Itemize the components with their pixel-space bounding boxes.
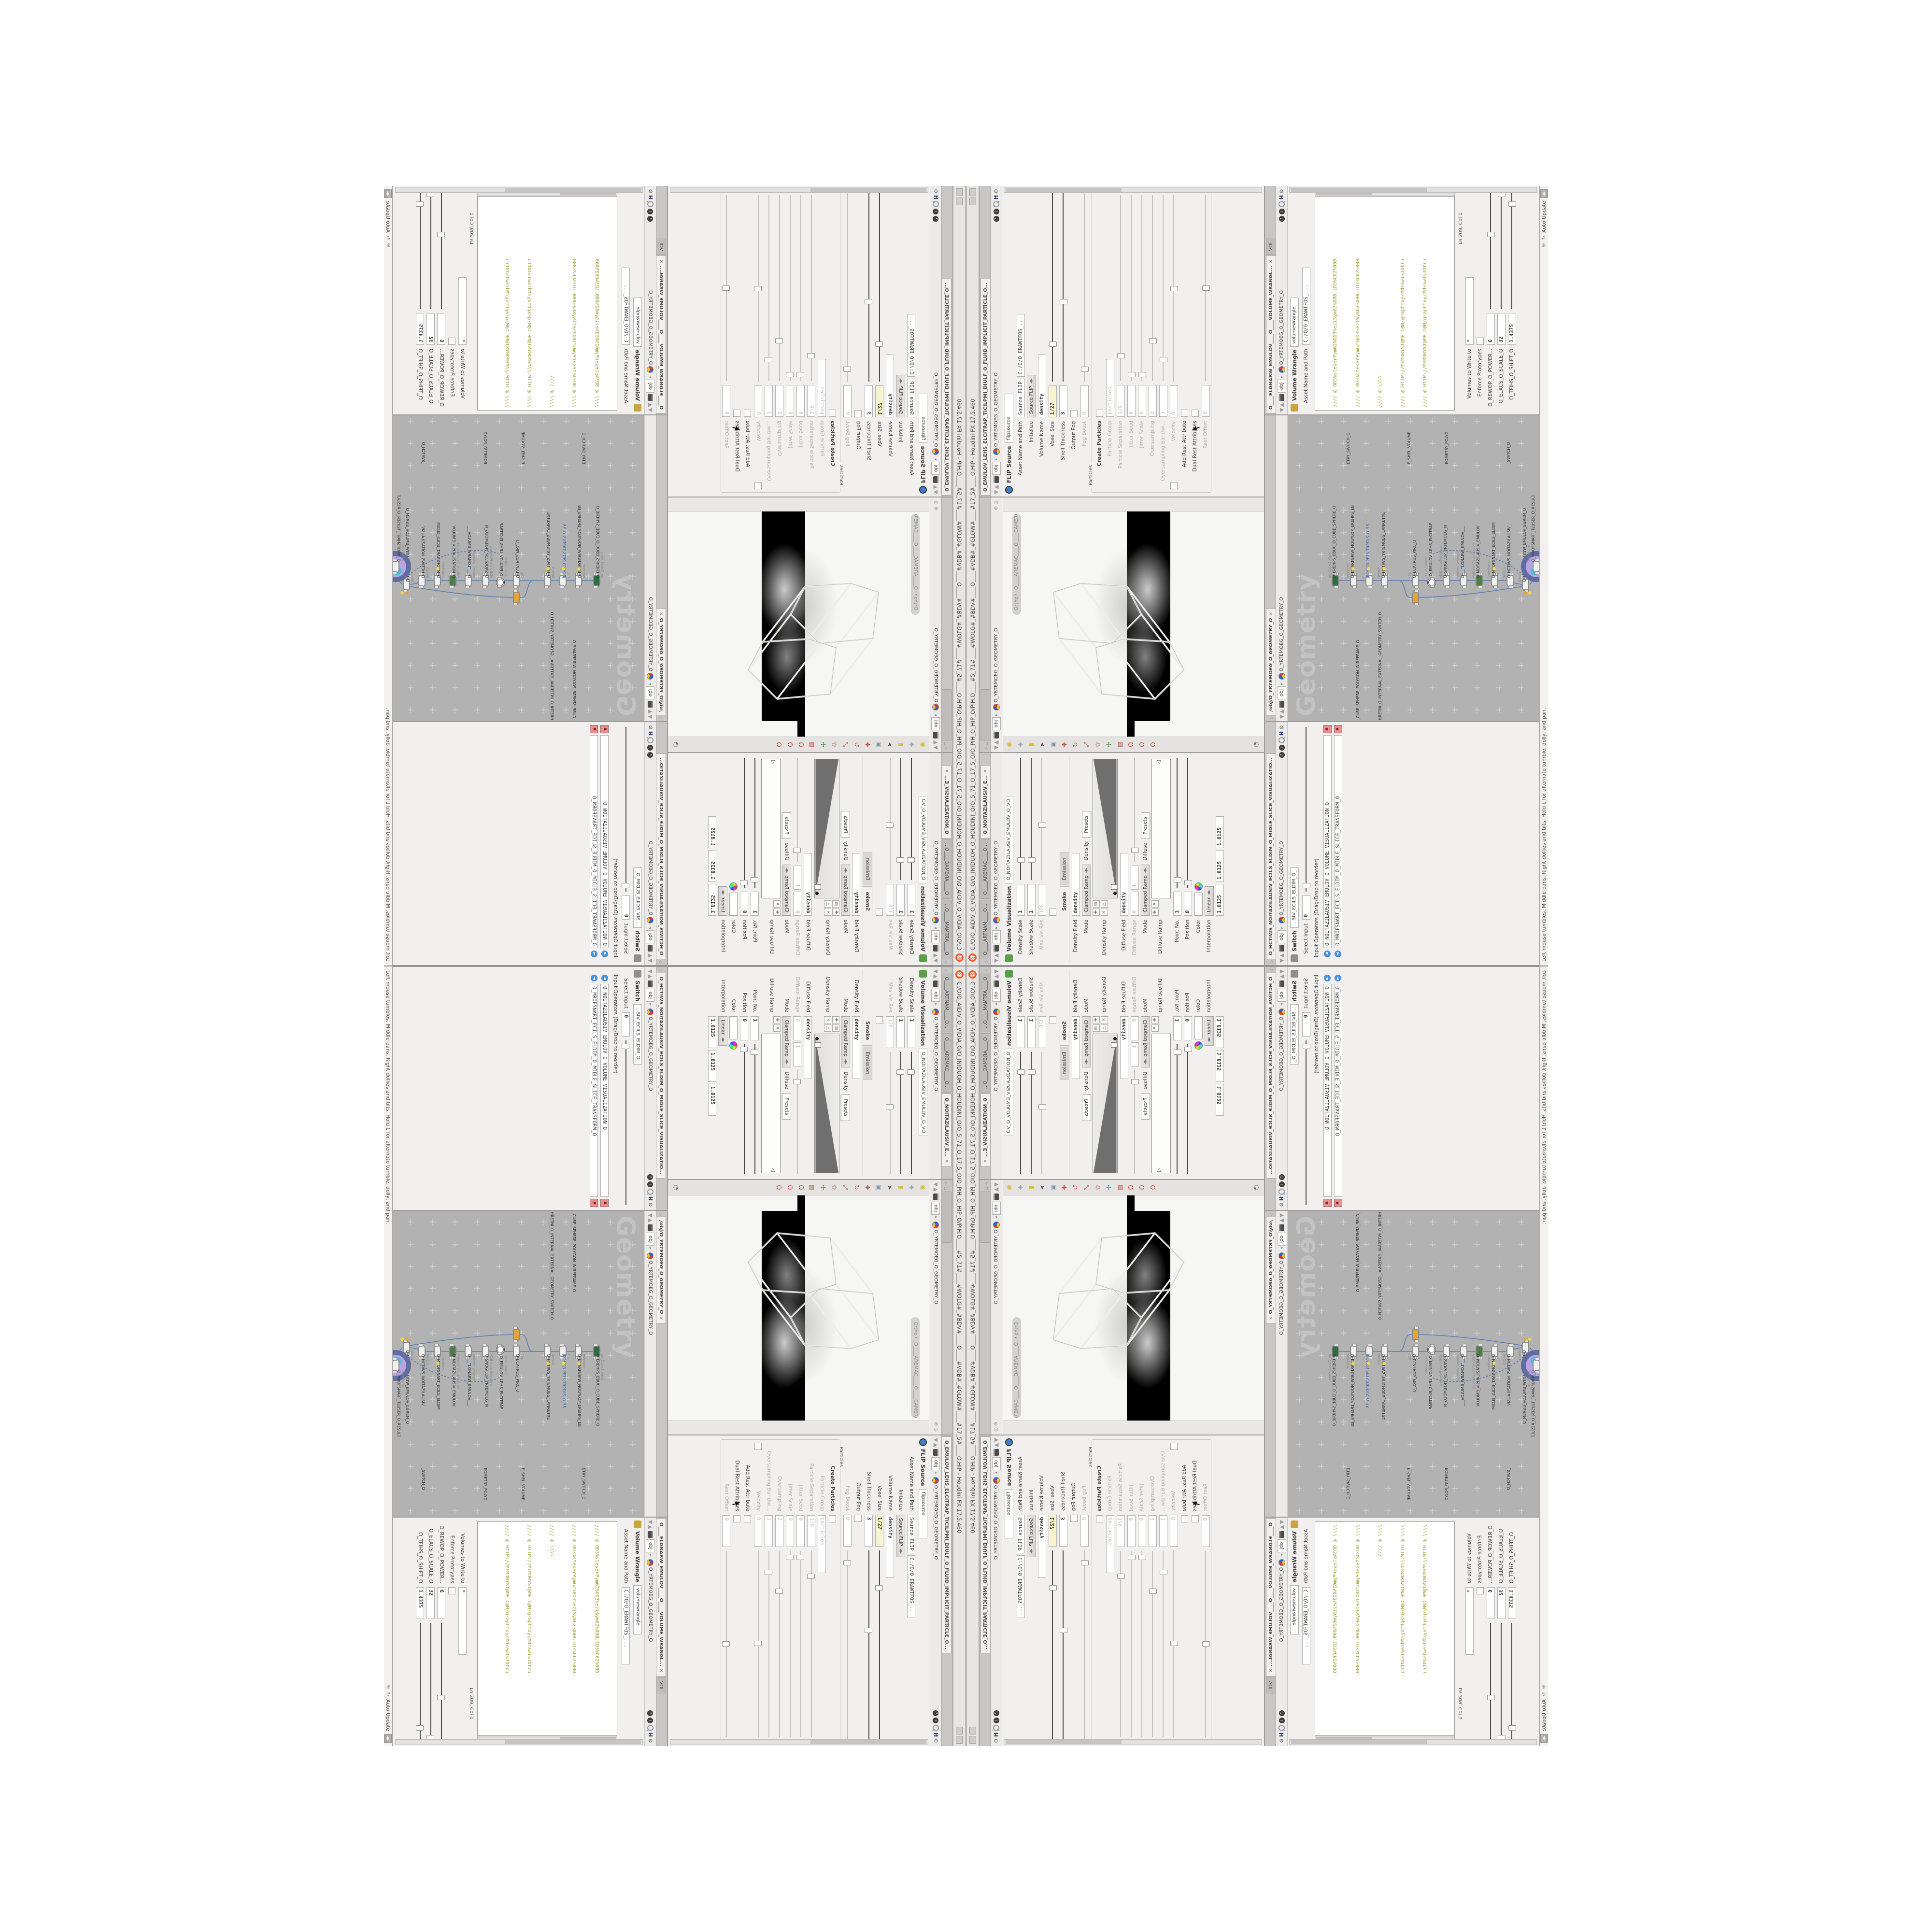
oversampling-slider[interactable]	[776, 193, 783, 381]
dual-rest-checkbox[interactable]	[734, 1515, 741, 1522]
viewport-canvas[interactable]: Ortho ▾ O____AREMAC____O____CAMERA_	[668, 511, 929, 737]
jitter-seed-slider[interactable]	[797, 1551, 805, 1739]
shadow-scale-slider[interactable]	[897, 1052, 905, 1176]
pane-split-icon[interactable]: ▷	[944, 960, 948, 963]
breadcrumb-path[interactable]: O_YRTEMOEG_O_GEOMETRY_O	[994, 1230, 999, 1304]
select-arrow-icon[interactable]: ➤	[884, 1183, 894, 1193]
marker-icon[interactable]: △	[824, 1024, 831, 1032]
ramp-buttons[interactable]: ✚✕	[1151, 1016, 1159, 1032]
pin-icon[interactable]: ⊕	[933, 1422, 938, 1426]
nav-down-icon[interactable]: ▼	[647, 959, 653, 963]
volume-name-field[interactable]: density	[1038, 355, 1046, 417]
remove-item-icon[interactable]: ✖	[590, 725, 598, 733]
pane-split-icon[interactable]: ▷	[944, 747, 948, 750]
close-button[interactable]	[969, 1736, 976, 1744]
operator-item[interactable]: O_MROFSNART_ECILS_ELDIM_O_MIDLE_SLICE_TR…	[1334, 984, 1342, 1197]
close-tab-icon[interactable]: ✕	[1269, 1669, 1274, 1673]
bypass-flag-icon[interactable]	[467, 1362, 470, 1365]
power-field[interactable]: 6	[1487, 1587, 1495, 1619]
viewport-canvas[interactable]: Ortho ▾ O____AREMAC____O____CAMERA_	[1003, 1195, 1264, 1421]
shade-diamond-icon[interactable]: ◈	[1016, 1183, 1025, 1193]
density-scale-field[interactable]: 1	[908, 884, 916, 916]
shell-thickness-slider[interactable]	[865, 1550, 873, 1743]
output-fog-checkbox[interactable]	[855, 410, 862, 417]
create-particles-checkbox[interactable]	[829, 410, 837, 417]
viewport-tab[interactable]	[980, 1192, 990, 1243]
enforce-prototypes-checkbox[interactable]	[1477, 1587, 1484, 1594]
template-flag-icon[interactable]	[1523, 591, 1527, 595]
nav-down-icon[interactable]: ▼	[1279, 408, 1285, 412]
operator-item[interactable]: O_MROFSNART_ECILS_ELDIM_O_MIDLE_SLICE_TR…	[590, 984, 598, 1197]
display-flag-icon[interactable]	[1528, 1337, 1532, 1341]
output-fog-checkbox[interactable]	[1070, 1515, 1078, 1522]
scale-slider[interactable]	[427, 1623, 435, 1743]
pane-split-icon[interactable]: ▷	[1269, 1213, 1274, 1216]
asset-name-field[interactable]: Source FLIP	[908, 1515, 916, 1553]
shift-slider[interactable]	[1508, 189, 1516, 309]
breadcrumb-path[interactable]: O_YRTEMOEG_O_GEOMETRY_O	[1279, 290, 1284, 365]
pane-split-icon[interactable]: ▷	[984, 969, 988, 972]
snap-point-icon[interactable]: Ω	[796, 740, 805, 750]
move-icon[interactable]: ✥	[1060, 740, 1070, 750]
nav-down-icon[interactable]: ▼	[647, 1520, 653, 1524]
obj-context[interactable]: obj	[992, 1457, 1001, 1470]
jitter-scale-slider[interactable]	[786, 193, 794, 381]
cook-icon[interactable]: ❋	[1541, 243, 1547, 247]
network-node-selected[interactable]	[1533, 560, 1539, 573]
color-swatch[interactable]	[1194, 1016, 1203, 1039]
dual-rest-checkbox[interactable]	[1192, 1515, 1199, 1522]
nav-down-icon[interactable]: ▼	[1279, 715, 1285, 719]
velocity-checkbox[interactable]	[1170, 1443, 1178, 1450]
breadcrumb-path[interactable]: O_YRTEMOEG_O_GEOMETRY_O	[1279, 597, 1284, 671]
breadcrumb-path[interactable]: O_YRTEMOEG_O_GEOMETRY_O	[1279, 841, 1284, 915]
breadcrumb-path[interactable]: O_YRTEMOEG_O_GEOMETRY_O	[994, 1485, 999, 1560]
diffuse-mode-dropdown[interactable]: Clamped Ramp◀▶	[1141, 865, 1150, 916]
diffuse-field-field[interactable]: density	[804, 853, 812, 916]
tab-camera[interactable]: O____AREMAC____O...	[980, 839, 990, 899]
rest-offset-slider[interactable]	[723, 1551, 730, 1739]
diffuse-range-max-field[interactable]: 1	[1131, 1042, 1139, 1066]
pin-icon[interactable]: ⊕	[994, 1422, 999, 1426]
operator-item[interactable]: O_NOITAZILAUSIV_EMULOV_O_VOLUME_VISUALIZ…	[1323, 984, 1332, 1197]
switch-tab[interactable]: O_HCTIWS_NOITAZILAUSIV_ECILS_ELDIM_O_MID…	[656, 753, 666, 959]
display-flag-icon[interactable]	[546, 1362, 550, 1365]
template-flag-icon[interactable]	[1523, 1337, 1527, 1341]
gear-icon[interactable]: ⚙	[647, 189, 653, 194]
density-scale-slider[interactable]	[908, 756, 915, 880]
asset-name-field[interactable]: Source FLIP	[1017, 1515, 1025, 1553]
info-icon[interactable]: i	[648, 745, 653, 751]
flipbook-icon[interactable]: ◔	[671, 740, 681, 750]
search-icon[interactable]	[1279, 1725, 1285, 1731]
wrangle-scrollbar[interactable]	[1289, 1739, 1537, 1745]
select-input-slider[interactable]	[1302, 725, 1310, 892]
velocity-checkbox[interactable]	[1170, 482, 1178, 489]
diffuse-range-slider[interactable]	[1131, 1070, 1138, 1176]
fog-boost-slider[interactable]	[844, 1550, 852, 1743]
close-tab-icon[interactable]: ✕	[658, 260, 663, 264]
value-z-field[interactable]: 1.8125	[1216, 1084, 1224, 1116]
shade-diamond-icon[interactable]: ◈	[907, 740, 916, 750]
close-tab-icon[interactable]: ✕	[1269, 1316, 1274, 1320]
folder-tab-smoke[interactable]: Smoke	[863, 1016, 872, 1046]
nav-up-icon[interactable]: ▲	[1279, 403, 1285, 407]
rest-offset-slider[interactable]	[1202, 1551, 1209, 1739]
network-tab[interactable]: /obj/O_YRTEMOEG_O_GEOMETRY_O✕	[656, 1217, 666, 1324]
scale-field[interactable]: 32	[1497, 313, 1506, 345]
shadow-scale-field[interactable]: 1	[897, 884, 905, 916]
close-tab-icon[interactable]: ✕	[944, 1159, 949, 1163]
network-node[interactable]	[496, 1345, 505, 1354]
network-node-branch[interactable]	[513, 1328, 520, 1341]
diffuse-range-min-field[interactable]: 0	[794, 1016, 802, 1040]
nav-up-icon[interactable]: ▲	[933, 1187, 939, 1191]
breadcrumb-path[interactable]: O_YRTEMOEG_O_GEOMETRY_O	[648, 597, 653, 671]
shell-thickness-field[interactable]: 3	[865, 1515, 873, 1547]
breadcrumb-path[interactable]: O_YRTEMOEG_O_GEOMETRY_O	[648, 1261, 653, 1335]
scale-field[interactable]: 32	[427, 1587, 435, 1619]
tab-visualization[interactable]: O_NOITAZILAUSIV_E...✕	[942, 1094, 952, 1166]
expand-icon[interactable]: ⊞	[1093, 1024, 1100, 1032]
voxel-size-slider[interactable]	[1049, 189, 1056, 382]
search-icon[interactable]	[933, 1725, 939, 1731]
point-no-slider[interactable]	[1173, 756, 1181, 888]
viewport-canvas[interactable]: Ortho ▾ O____AREMAC____O____CAMERA_	[1003, 511, 1264, 737]
nav-down-icon[interactable]: ▼	[647, 715, 653, 719]
value-y-field[interactable]: 1.8125	[709, 1050, 717, 1082]
search-icon[interactable]	[647, 1189, 653, 1195]
marker-icon[interactable]: △	[1101, 900, 1108, 908]
unlabeled-checkbox[interactable]	[1049, 909, 1056, 916]
nav-up-icon[interactable]: ▲	[1279, 1525, 1285, 1529]
interpolation-dropdown[interactable]: Linear◀▶	[719, 886, 728, 916]
diffuse-range-slider[interactable]	[1131, 756, 1138, 862]
value-x-field[interactable]: 1.8125	[1216, 1016, 1224, 1048]
particle-group-field[interactable]: particles	[818, 1515, 826, 1573]
create-particles-checkbox[interactable]	[1096, 410, 1103, 417]
oversampling-field[interactable]: 2	[1149, 385, 1157, 417]
tab-mantra[interactable]: O____ARTNAM____O...	[942, 900, 952, 959]
refresh-icon[interactable]: ↻	[1541, 1692, 1547, 1696]
power-field[interactable]: 6	[438, 1587, 446, 1619]
obj-context[interactable]: obj	[646, 989, 655, 1002]
shade-diamond-icon[interactable]: ◈	[907, 1183, 916, 1193]
hscript-icon[interactable]: H	[1279, 195, 1285, 199]
wrangle-tab[interactable]: O____ELGNARW_EMULOV____O____VOLUME_WRANG…	[656, 256, 666, 414]
nav-down-icon[interactable]: ▼	[933, 1182, 939, 1186]
obj-context[interactable]: obj	[932, 989, 940, 1002]
nav-down-icon[interactable]: ▼	[1279, 1213, 1285, 1217]
breadcrumb-path[interactable]: O_YRTEMOEG_O_GEOMETRY_O	[933, 1017, 938, 1091]
fog-boost-field[interactable]: 0	[844, 1515, 852, 1547]
viewport-right-strip[interactable]	[1003, 1421, 1264, 1435]
switch-node-name-field[interactable]: ...SIV_ECILS_ELDIM_O_	[1290, 867, 1299, 928]
density-presets-button[interactable]: Presets	[841, 811, 851, 837]
interpolation-dropdown[interactable]: Linear◀▶	[719, 1016, 728, 1046]
color-wheel-icon[interactable]	[1194, 882, 1203, 891]
select-input-slider[interactable]	[1302, 1040, 1310, 1207]
wrangle-tab-overflow[interactable]: VOl	[1266, 1677, 1276, 1693]
close-tab-icon[interactable]: ✕	[658, 1669, 663, 1673]
point-no-slider[interactable]	[751, 756, 759, 888]
snap-grid-icon[interactable]: ▦	[1116, 740, 1125, 750]
info-icon[interactable]: i	[648, 1718, 653, 1723]
fog-boost-field[interactable]: 0	[1080, 1515, 1089, 1547]
position-slider[interactable]	[1184, 756, 1192, 888]
velocity-field[interactable]: 0	[1170, 1515, 1178, 1547]
particle-separation-field[interactable]: 1/9	[1117, 1515, 1125, 1547]
search-icon[interactable]	[933, 201, 939, 207]
value-z-field[interactable]: 1.8125	[709, 816, 717, 848]
obj-context[interactable]: obj	[1278, 686, 1286, 699]
nav-down-icon[interactable]: ▼	[993, 1182, 999, 1186]
particle-group-field[interactable]: particles	[1106, 359, 1114, 417]
move-icon[interactable]: ✥	[862, 740, 872, 750]
shadow-scale-field[interactable]: 1	[1027, 1016, 1036, 1048]
breadcrumb-path[interactable]: O_YRTEMOEG_O_GEOMETRY_O	[1279, 1261, 1284, 1335]
network-node[interactable]	[1427, 1345, 1436, 1354]
density-ramp-widget[interactable]	[814, 1034, 839, 1173]
oversampling-bw-slider[interactable]	[765, 193, 773, 381]
jitter-seed-slider[interactable]	[1127, 193, 1135, 381]
obj-context[interactable]: obj	[932, 462, 940, 475]
obj-context[interactable]: obj	[932, 1202, 940, 1215]
vex-snippet-editor[interactable]: //// @ 0D3%steserPym62%0D3%eziSym62%000.…	[1315, 196, 1455, 411]
wrangle-node-name-field[interactable]: volumewrangle	[634, 298, 642, 347]
nav-down-icon[interactable]: ▼	[993, 1438, 999, 1442]
pin-icon[interactable]: ⊕	[933, 506, 938, 510]
wrangle-tab-overflow[interactable]: VOl	[656, 239, 666, 255]
info-icon[interactable]: i	[648, 1181, 653, 1187]
remove-item-icon[interactable]: ✖	[1323, 1199, 1332, 1207]
nav-up-icon[interactable]: ▲	[1279, 953, 1285, 957]
pane-split-icon[interactable]: ▷	[944, 969, 948, 972]
position-field[interactable]: 0	[740, 892, 749, 916]
marker-icon[interactable]: △	[824, 900, 831, 908]
gear-icon[interactable]: ⚙	[993, 1738, 999, 1743]
nav-down-icon[interactable]: ▼	[933, 959, 939, 963]
cook-icon[interactable]: ❋	[385, 1685, 391, 1689]
nav-down-icon[interactable]: ▼	[993, 490, 999, 494]
viewport-tab[interactable]	[942, 689, 952, 740]
add-point-icon[interactable]: ✚	[773, 1016, 781, 1023]
jitter-seed-field[interactable]: 0	[797, 1515, 805, 1547]
flipbook-icon[interactable]: ◔	[671, 1183, 681, 1193]
flip-node-name-field[interactable]: flipsource	[919, 394, 928, 443]
gear-icon[interactable]: ⚙	[1279, 725, 1285, 730]
window-buttons[interactable]	[956, 1727, 963, 1744]
display-flag-icon[interactable]	[1492, 1362, 1496, 1365]
wrangle-tab-overflow[interactable]: VOl	[1266, 239, 1276, 255]
display-flag-icon[interactable]	[562, 567, 565, 570]
shift-slider[interactable]	[416, 189, 424, 309]
wrangle-tab[interactable]: O____ELGNARW_EMULOV____O____VOLUME_WRANG…	[1266, 1519, 1276, 1676]
color-wheel-icon[interactable]	[730, 1041, 738, 1050]
add-rest-checkbox[interactable]	[1181, 410, 1188, 417]
obj-context[interactable]: obj	[992, 462, 1001, 475]
update-mode-dropdown-icon[interactable]: ◀▶	[384, 1734, 392, 1743]
point-no-slider[interactable]	[751, 1044, 759, 1176]
point-no-field[interactable]: 1	[1173, 892, 1181, 916]
breadcrumb-path[interactable]: O_YRTEMOEG_O_GEOMETRY_O	[994, 628, 999, 702]
display-flag-icon[interactable]	[546, 567, 550, 570]
ramp-buttons[interactable]: ✚⊞✕△	[1093, 1016, 1108, 1032]
help-icon[interactable]: ?	[648, 216, 653, 222]
display-flag-icon[interactable]	[1351, 1362, 1355, 1365]
voxel-size-slider[interactable]	[1049, 1550, 1056, 1743]
display-flag-icon[interactable]	[577, 1362, 581, 1365]
asset-path-field[interactable]: C:/O/O_ERAWTFOS_...	[1017, 1555, 1025, 1618]
breadcrumb-path[interactable]: O_YRTEMOEG_O_GEOMETRY_O	[933, 1485, 938, 1560]
diffuse-presets-button[interactable]: Presets	[1141, 1093, 1150, 1119]
vv-node-name-field[interactable]: O_NOITAZILAUSIV_EMULOV_O_VO	[1005, 796, 1013, 883]
info-icon[interactable]: i	[933, 209, 939, 214]
tab-visualization[interactable]: O_NOITAZILAUSIV_E...✕	[980, 765, 990, 838]
input-link-icon[interactable]: ◄	[591, 951, 597, 957]
network-node-selected[interactable]	[393, 560, 399, 573]
obj-context[interactable]: obj	[646, 686, 655, 699]
volume-name-field[interactable]: density	[886, 355, 895, 417]
network-tab[interactable]: /obj/O_YRTEMOEG_O_GEOMETRY_O✕	[656, 608, 666, 715]
add-rest-checkbox[interactable]	[1181, 1515, 1188, 1522]
power-slider[interactable]	[438, 189, 445, 309]
obj-context[interactable]: obj	[1278, 380, 1286, 393]
gear-icon[interactable]: ⚙	[1279, 1202, 1285, 1207]
delete-point-icon[interactable]: ✕	[773, 1024, 781, 1032]
flip-node-name-field[interactable]: flipsource	[1005, 1489, 1013, 1538]
template-flag-icon[interactable]	[405, 1337, 409, 1341]
max-vis-res-field[interactable]: 128	[1038, 884, 1046, 916]
density-mode-dropdown[interactable]: Clamped Ramp◀▶	[1082, 865, 1091, 916]
density-presets-button[interactable]: Presets	[1082, 1094, 1091, 1121]
viewport-canvas[interactable]: Ortho ▾ O____AREMAC____O____CAMERA_	[668, 1195, 929, 1421]
rotate-icon[interactable]: ↻	[1071, 1183, 1081, 1193]
close-button[interactable]	[969, 188, 976, 196]
pane-split-icon[interactable]: ▷	[1269, 969, 1274, 972]
window-buttons[interactable]	[969, 1727, 976, 1744]
delete-point-icon[interactable]: ✕	[1151, 900, 1159, 908]
oversampling-field[interactable]: 2	[1149, 1515, 1157, 1547]
folder-tab-smoke[interactable]: Smoke	[1060, 1016, 1069, 1046]
obj-context[interactable]: obj	[1278, 1233, 1286, 1246]
asset-path-field[interactable]: C:/O/O_ERAWTFOS_...	[1302, 268, 1310, 345]
interpolation-dropdown[interactable]: Linear◀▶	[1205, 1016, 1214, 1046]
flip-tab[interactable]: O_EMULOV_LEHS_ELCITRAP_TICILPMI_DIULF_O_…	[942, 279, 952, 496]
diffuse-mode-dropdown[interactable]: Clamped Ramp◀▶	[782, 1016, 792, 1067]
shell-thickness-field[interactable]: 3	[865, 385, 873, 417]
value-y-field[interactable]: 1.8125	[1216, 850, 1224, 882]
tab-mantra[interactable]: O____ARTNAM____O...	[980, 973, 990, 1032]
snap-prim-icon[interactable]: Ω	[784, 1183, 794, 1193]
velocity-slider[interactable]	[1170, 1550, 1178, 1739]
camera-pill[interactable]: O____AREMAC____O____CAMERA_	[911, 514, 920, 594]
box-select-icon[interactable]: ▣	[1049, 1183, 1059, 1193]
search-icon[interactable]	[647, 1725, 653, 1731]
scale-field[interactable]: 32	[1497, 1587, 1506, 1619]
info-icon[interactable]: i	[1279, 1181, 1285, 1187]
color-swatch[interactable]	[730, 1016, 738, 1039]
oversampling-field[interactable]: 2	[776, 385, 784, 417]
bypass-flag-icon[interactable]	[1462, 1362, 1465, 1365]
nav-up-icon[interactable]: ▲	[933, 974, 939, 978]
diffuse-range-min-field[interactable]: 0	[1131, 1016, 1139, 1040]
radio-icon[interactable]: ◎	[933, 500, 938, 505]
diffuse-presets-button[interactable]: Presets	[1141, 812, 1150, 838]
max-vis-res-field[interactable]: 128	[886, 884, 895, 916]
flip-scrollbar[interactable]	[1004, 1739, 1262, 1745]
density-ramp-widget[interactable]	[814, 759, 839, 898]
flip-tab[interactable]: O_EMULOV_LEHS_ELCITRAP_TICILPMI_DIULF_O_…	[980, 279, 990, 496]
display-flag-icon[interactable]	[1367, 1362, 1370, 1365]
volume-name-field[interactable]: density	[886, 1515, 895, 1577]
density-mode-dropdown[interactable]: Clamped Ramp◀▶	[1082, 1016, 1091, 1067]
nav-up-icon[interactable]: ▲	[1279, 710, 1285, 713]
shadow-scale-slider[interactable]	[1027, 756, 1035, 880]
output-fog-checkbox[interactable]	[1070, 410, 1078, 417]
voxel-size-slider[interactable]	[876, 1550, 883, 1743]
unlabeled-checkbox[interactable]	[876, 1016, 883, 1023]
nav-down-icon[interactable]: ▼	[1279, 969, 1285, 973]
oversampling-bw-field[interactable]: 1	[765, 1515, 773, 1547]
cook-icon[interactable]: ❋	[385, 243, 391, 247]
diffuse-range-slider[interactable]	[794, 756, 801, 862]
input-link-icon[interactable]: ◄	[601, 951, 608, 957]
scale-icon[interactable]: ⤢	[840, 1183, 850, 1193]
diffuse-ramp-widget[interactable]: ◁	[761, 759, 781, 898]
select-input-field[interactable]: 0	[1302, 1012, 1310, 1037]
material-book-icon[interactable]: ▮	[895, 1183, 905, 1193]
add-point-icon[interactable]: ✚	[1093, 1016, 1100, 1023]
shell-thickness-slider[interactable]	[1059, 1550, 1067, 1743]
value-x-field[interactable]: 1.8125	[709, 884, 717, 916]
radio-icon[interactable]: ◎	[994, 1427, 999, 1432]
oversampling-bw-slider[interactable]	[765, 1551, 773, 1739]
axis-icon[interactable]: ✣	[1105, 1183, 1114, 1193]
gear-icon[interactable]: ⚙	[647, 1202, 653, 1207]
operator-item[interactable]: O_NOITAZILAUSIV_EMULOV_O_VOLUME_VISUALIZ…	[601, 735, 609, 948]
jitter-seed-field[interactable]: 0	[797, 385, 805, 417]
fog-boost-slider[interactable]	[1080, 1550, 1088, 1743]
delete-point-icon[interactable]: ✕	[824, 909, 831, 916]
velocity-slider[interactable]	[754, 193, 762, 382]
breadcrumb-path[interactable]: O_YRTEMOEG_O_GEOMETRY_O	[933, 372, 938, 447]
update-mode-dropdown-icon[interactable]: ◀▶	[1540, 189, 1548, 198]
viewport-tab[interactable]	[942, 1192, 952, 1243]
minimize-button[interactable]	[956, 1727, 963, 1734]
oversampling-bw-field[interactable]: 1	[1159, 1515, 1167, 1547]
flip-tab[interactable]: O_EMULOV_LEHS_ELCITRAP_TICILPMI_DIULF_O_…	[980, 1436, 990, 1653]
vv-node-name-field[interactable]: O_NOITAZILAUSIV_EMULOV_O_VO	[919, 796, 928, 883]
color-wheel-icon[interactable]	[730, 882, 738, 891]
window-buttons[interactable]	[969, 188, 976, 205]
info-icon[interactable]: i	[994, 1718, 999, 1723]
diffuse-ramp-widget[interactable]: ◁	[1151, 1034, 1171, 1173]
switch-node-name-field[interactable]: ...SIV_ECILS_ELDIM_O_	[634, 1004, 642, 1065]
volumes-field[interactable]: *	[1465, 1587, 1474, 1655]
close-tab-icon[interactable]: ✕	[983, 769, 988, 773]
search-icon[interactable]	[1279, 737, 1285, 743]
breadcrumb-path[interactable]: O_YRTEMOEG_O_GEOMETRY_O	[648, 1567, 653, 1642]
nav-up-icon[interactable]: ▲	[993, 485, 999, 489]
delete-point-icon[interactable]: ✕	[1151, 1024, 1159, 1032]
diffuse-presets-button[interactable]: Presets	[782, 812, 792, 838]
tab-visualization[interactable]: O_NOITAZILAUSIV_E...✕	[942, 765, 952, 838]
folder-tab-emission[interactable]: Emission	[1060, 852, 1069, 886]
flip-scrollbar[interactable]	[670, 1739, 928, 1745]
density-field-field[interactable]: density	[852, 1016, 861, 1079]
breadcrumb-path[interactable]: O_YRTEMOEG_O_GEOMETRY_O	[1279, 1567, 1284, 1642]
